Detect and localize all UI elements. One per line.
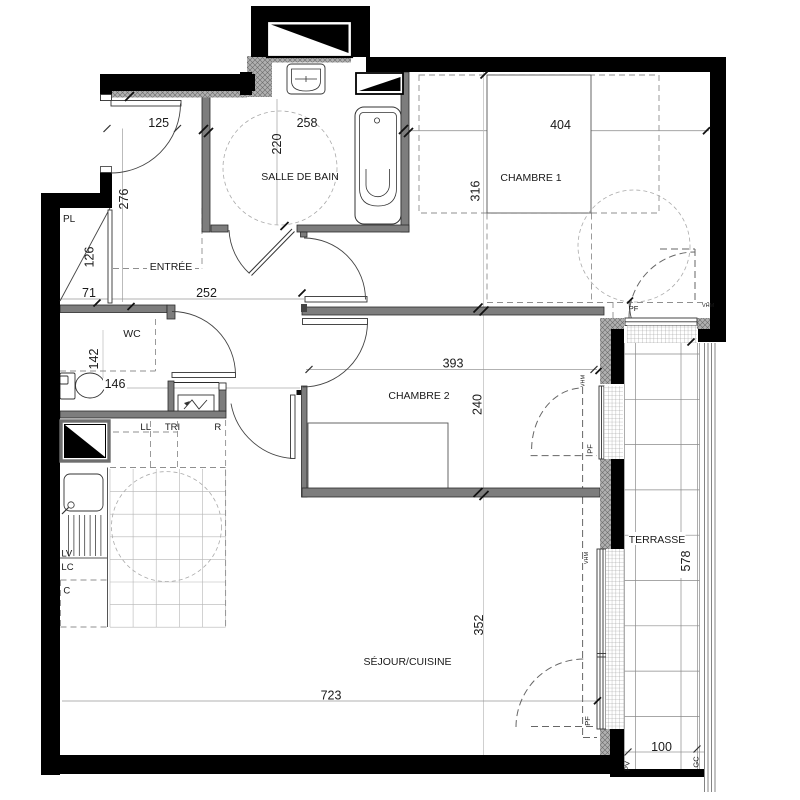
svg-text:142: 142 — [87, 349, 101, 370]
svg-text:LC: LC — [61, 562, 73, 573]
svg-text:LL: LL — [140, 422, 151, 433]
svg-text:252: 252 — [196, 286, 217, 300]
svg-text:258: 258 — [297, 116, 318, 130]
svg-text:276: 276 — [117, 189, 131, 210]
svg-text:LV: LV — [61, 549, 73, 560]
svg-text:71: 71 — [82, 286, 96, 300]
svg-text:TERRASSE: TERRASSE — [629, 534, 686, 546]
svg-text:PL: PL — [63, 214, 76, 225]
svg-text:352: 352 — [472, 615, 486, 636]
svg-text:WC: WC — [123, 328, 141, 340]
svg-text:220: 220 — [270, 134, 284, 155]
svg-text:CHAMBRE 1: CHAMBRE 1 — [500, 172, 561, 184]
svg-text:VHM: VHM — [584, 551, 590, 564]
svg-text:578: 578 — [679, 551, 693, 572]
svg-text:GC: GC — [692, 756, 701, 768]
svg-text:ENTRÉE: ENTRÉE — [150, 260, 193, 273]
svg-text:126: 126 — [83, 247, 97, 268]
svg-text:R: R — [214, 422, 221, 433]
svg-text:393: 393 — [443, 357, 464, 371]
svg-text:C: C — [63, 586, 70, 597]
svg-text:VHM: VHM — [581, 374, 587, 387]
svg-text:723: 723 — [321, 689, 342, 703]
svg-text:TRI: TRI — [165, 422, 180, 433]
svg-text:VHM: VHM — [702, 303, 715, 309]
svg-text:404: 404 — [550, 118, 571, 132]
svg-text:PF: PF — [586, 444, 595, 454]
svg-text:SALLE DE BAIN: SALLE DE BAIN — [261, 171, 339, 183]
svg-text:316: 316 — [469, 181, 483, 202]
svg-text:SÉJOUR/CUISINE: SÉJOUR/CUISINE — [363, 655, 451, 668]
svg-text:CHAMBRE 2: CHAMBRE 2 — [388, 390, 449, 402]
svg-text:PV: PV — [623, 761, 632, 771]
svg-text:PF: PF — [629, 304, 639, 313]
svg-text:100: 100 — [651, 740, 672, 754]
svg-text:146: 146 — [105, 377, 126, 391]
svg-text:PF: PF — [583, 716, 592, 726]
svg-text:125: 125 — [148, 116, 169, 130]
svg-text:240: 240 — [471, 394, 485, 415]
